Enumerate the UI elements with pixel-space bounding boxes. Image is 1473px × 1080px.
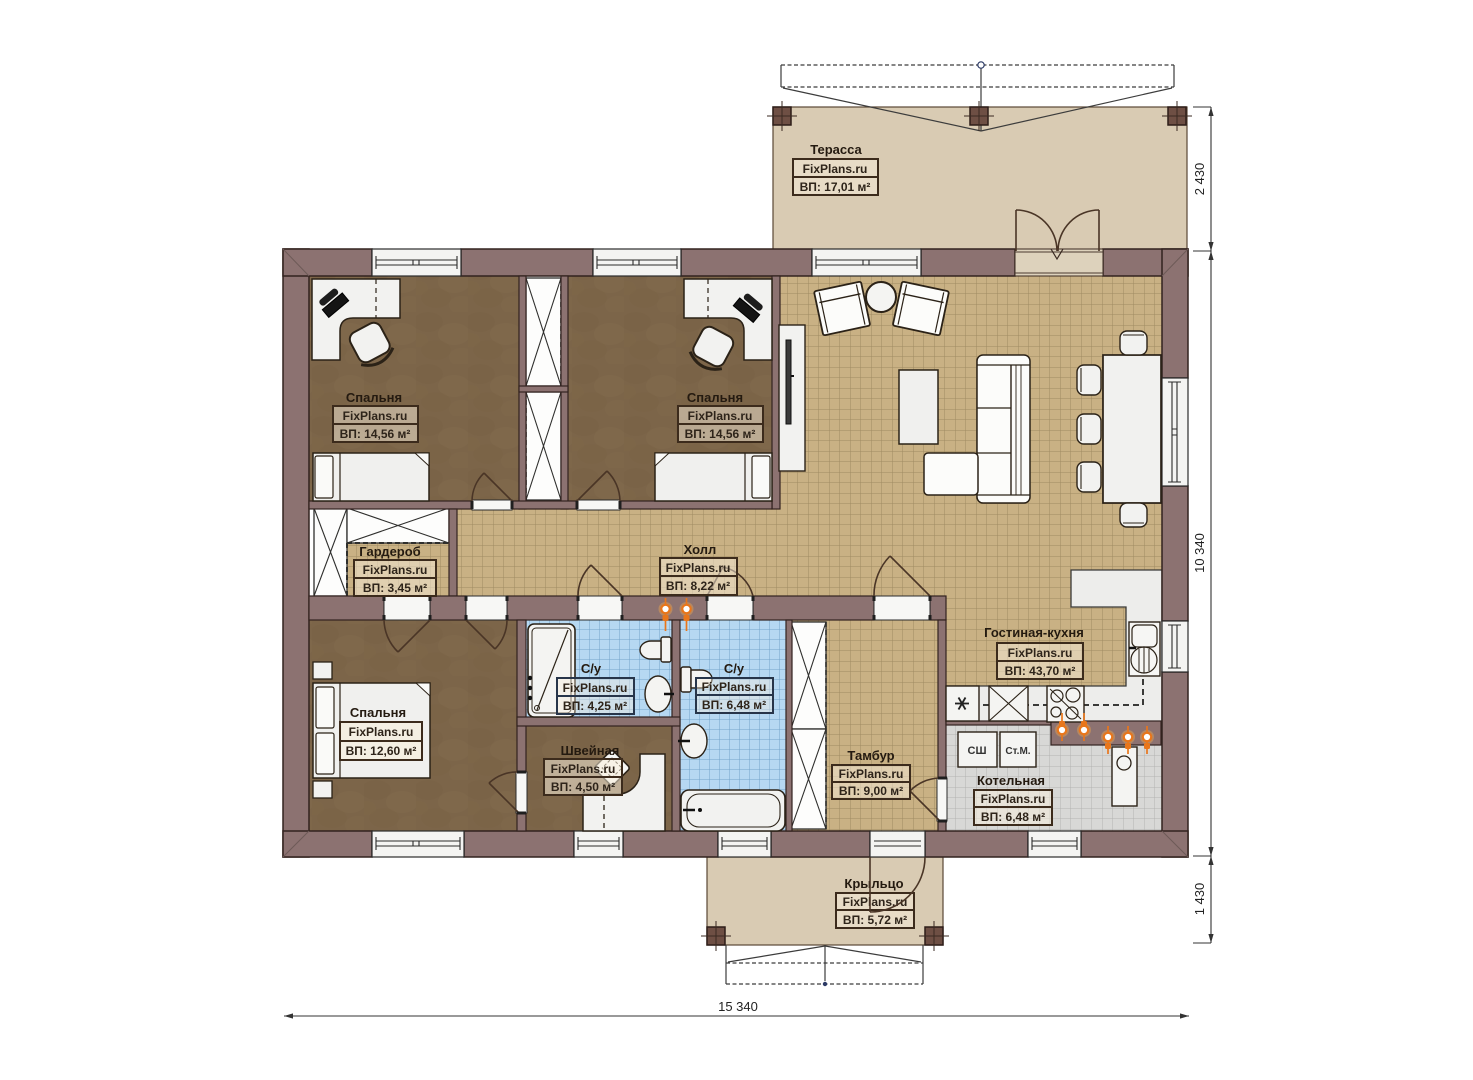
- svg-text:Тамбур: Тамбур: [847, 748, 894, 763]
- svg-text:FixPlans.ru: FixPlans.ru: [666, 561, 731, 575]
- svg-text:Спальня: Спальня: [350, 705, 406, 720]
- svg-text:Гостиная-кухня: Гостиная-кухня: [984, 625, 1084, 640]
- svg-text:FixPlans.ru: FixPlans.ru: [1008, 646, 1073, 660]
- svg-text:Холл: Холл: [684, 542, 717, 557]
- svg-text:ВП: 6,48 м²: ВП: 6,48 м²: [702, 698, 766, 712]
- svg-text:ВП: 17,01 м²: ВП: 17,01 м²: [800, 180, 871, 194]
- svg-text:ВП: 4,25 м²: ВП: 4,25 м²: [563, 699, 627, 713]
- svg-text:2 430: 2 430: [1192, 163, 1207, 196]
- svg-text:FixPlans.ru: FixPlans.ru: [843, 895, 908, 909]
- svg-text:FixPlans.ru: FixPlans.ru: [688, 409, 753, 423]
- svg-text:СШ: СШ: [968, 745, 987, 757]
- svg-text:FixPlans.ru: FixPlans.ru: [563, 681, 628, 695]
- svg-text:Крыльцо: Крыльцо: [844, 876, 903, 891]
- svg-text:Гардероб: Гардероб: [359, 544, 420, 559]
- svg-text:ВП: 5,72 м²: ВП: 5,72 м²: [843, 913, 907, 927]
- svg-text:ВП: 8,22 м²: ВП: 8,22 м²: [666, 579, 730, 593]
- svg-text:Спальня: Спальня: [346, 390, 402, 405]
- svg-text:FixPlans.ru: FixPlans.ru: [343, 409, 408, 423]
- svg-text:Спальня: Спальня: [687, 390, 743, 405]
- svg-text:ВП: 9,00 м²: ВП: 9,00 м²: [839, 784, 903, 798]
- svg-text:ВП: 43,70 м²: ВП: 43,70 м²: [1005, 664, 1076, 678]
- svg-text:ВП: 3,45 м²: ВП: 3,45 м²: [363, 581, 427, 595]
- svg-text:Котельная: Котельная: [977, 773, 1045, 788]
- svg-text:ВП: 14,56 м²: ВП: 14,56 м²: [685, 427, 756, 441]
- svg-text:ВП: 4,50 м²: ВП: 4,50 м²: [551, 780, 615, 794]
- svg-text:FixPlans.ru: FixPlans.ru: [349, 725, 414, 739]
- svg-text:FixPlans.ru: FixPlans.ru: [981, 792, 1046, 806]
- svg-text:15 340: 15 340: [718, 999, 758, 1014]
- svg-text:10 340: 10 340: [1192, 533, 1207, 573]
- svg-text:С/у: С/у: [724, 661, 745, 676]
- svg-text:FixPlans.ru: FixPlans.ru: [702, 680, 767, 694]
- svg-text:Ст.М.: Ст.М.: [1005, 746, 1030, 757]
- svg-text:FixPlans.ru: FixPlans.ru: [839, 767, 904, 781]
- svg-text:ВП: 14,56 м²: ВП: 14,56 м²: [340, 427, 411, 441]
- svg-text:ВП: 12,60 м²: ВП: 12,60 м²: [346, 744, 417, 758]
- svg-text:Терасса: Терасса: [810, 142, 862, 157]
- svg-text:ВП: 6,48 м²: ВП: 6,48 м²: [981, 810, 1045, 824]
- svg-text:FixPlans.ru: FixPlans.ru: [363, 563, 428, 577]
- svg-text:С/у: С/у: [581, 661, 602, 676]
- svg-text:FixPlans.ru: FixPlans.ru: [803, 162, 868, 176]
- svg-text:FixPlans.ru: FixPlans.ru: [551, 762, 616, 776]
- svg-text:1 430: 1 430: [1192, 883, 1207, 916]
- svg-text:Швейная: Швейная: [561, 743, 620, 758]
